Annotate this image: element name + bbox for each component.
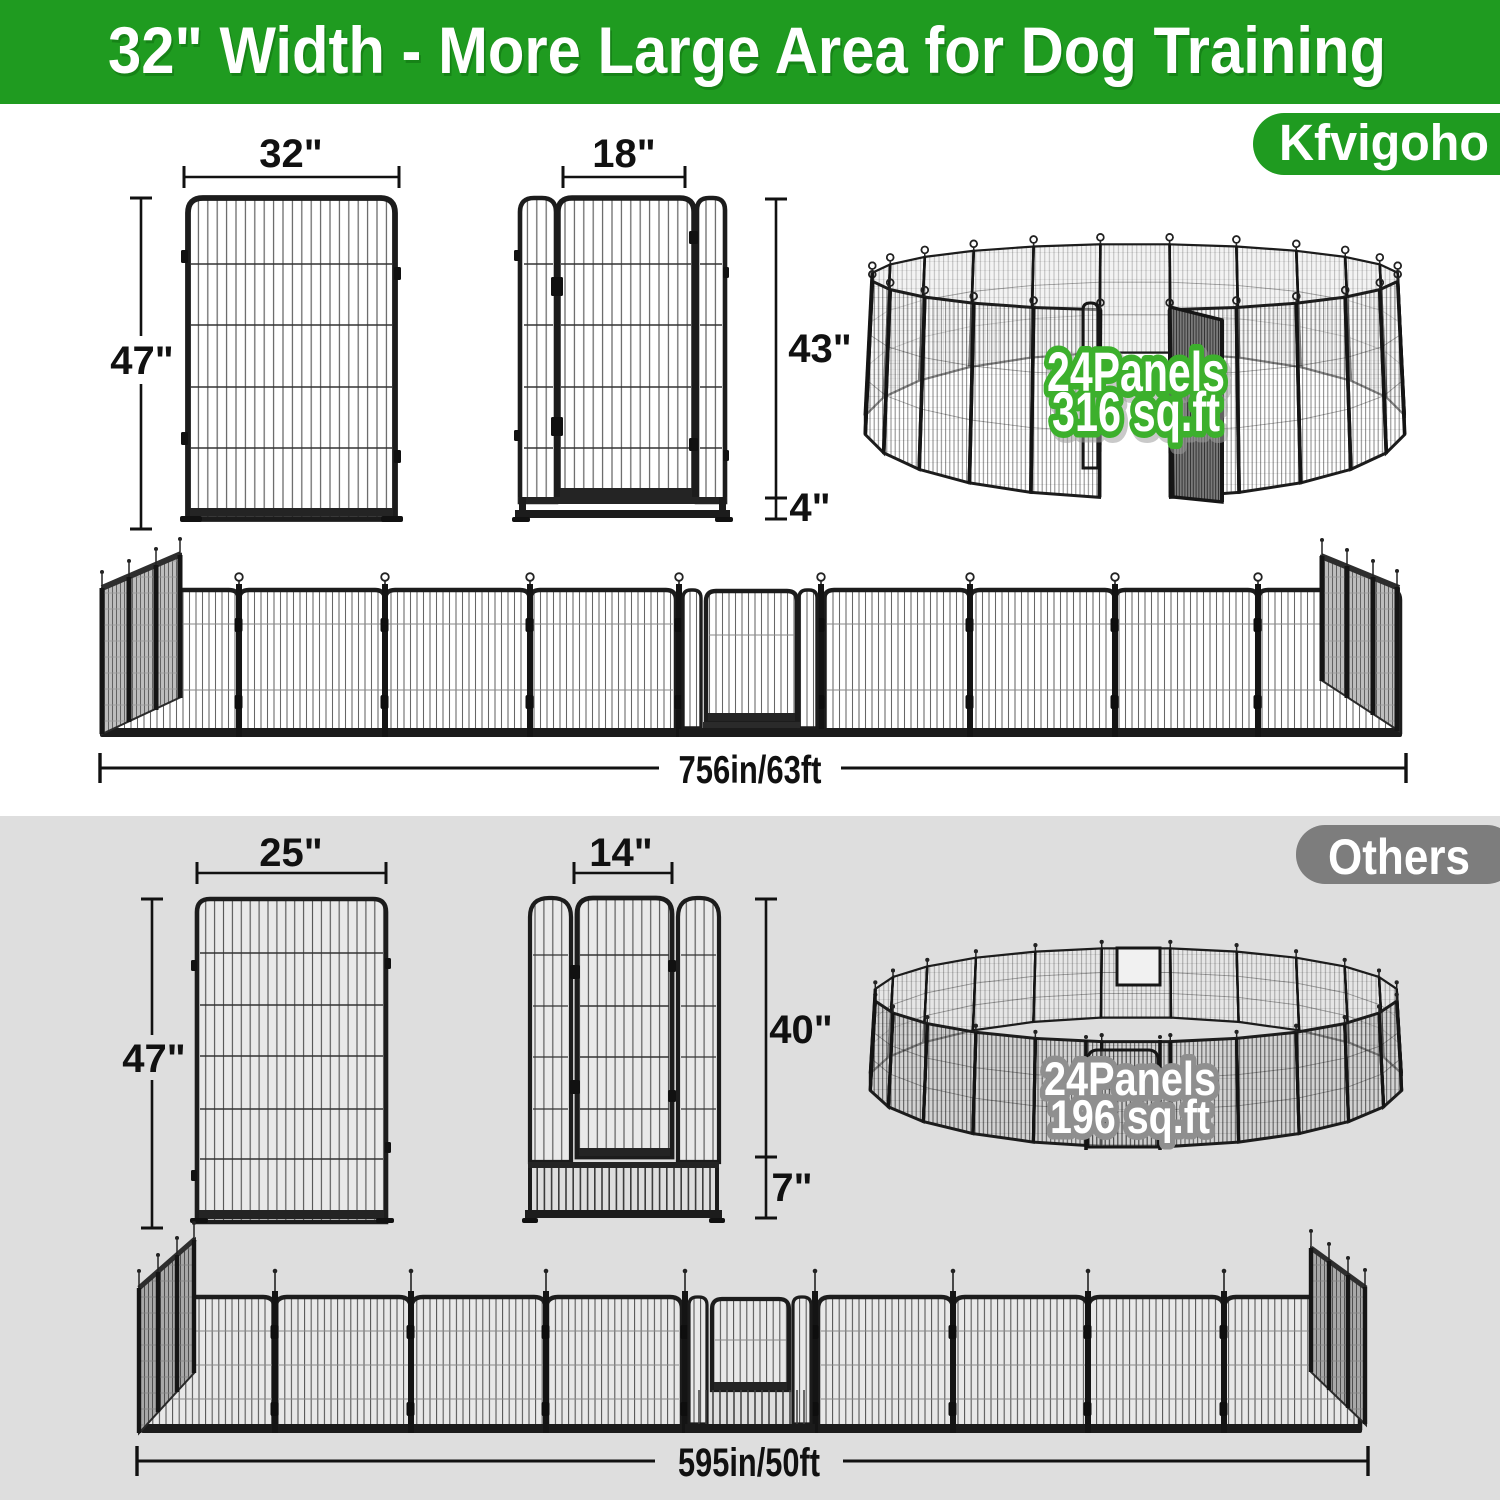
svg-text:7": 7": [771, 1166, 812, 1210]
svg-text:Kfvigoho: Kfvigoho: [1279, 114, 1489, 171]
svg-text:18": 18": [592, 132, 655, 176]
svg-text:595in/50ft: 595in/50ft: [678, 1441, 820, 1485]
svg-text:32": 32": [259, 132, 322, 176]
svg-text:Others: Others: [1328, 829, 1470, 885]
svg-text:43": 43": [788, 327, 851, 371]
svg-text:40": 40": [769, 1008, 832, 1052]
svg-text:47": 47": [110, 339, 173, 383]
svg-text:32" Width - More Large Area fo: 32" Width - More Large Area for Dog Trai…: [108, 13, 1386, 87]
svg-text:316 sq.ft: 316 sq.ft: [1052, 380, 1220, 443]
svg-text:25": 25": [259, 831, 322, 875]
svg-text:756in/63ft: 756in/63ft: [679, 749, 822, 792]
svg-text:14": 14": [589, 831, 652, 875]
svg-text:4": 4": [789, 486, 830, 530]
svg-text:47": 47": [122, 1037, 185, 1081]
svg-text:196 sq.ft: 196 sq.ft: [1050, 1090, 1210, 1143]
